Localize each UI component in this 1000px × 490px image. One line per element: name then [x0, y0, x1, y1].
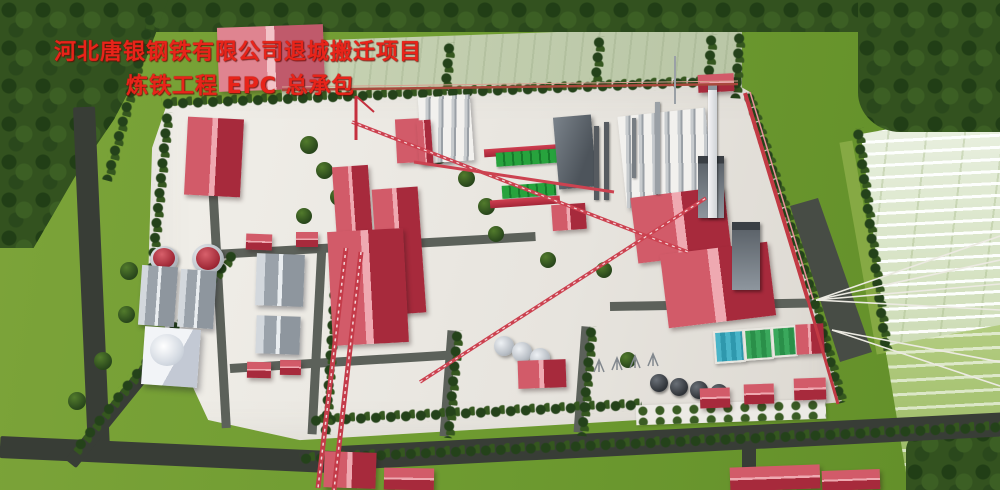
tower-crane: [356, 96, 374, 140]
conveyor-gallery: [352, 122, 706, 382]
aerial-render-steel-plant: 河北唐银钢铁有限公司退城搬迁项目 炼铁工程 EPC 总承包: [0, 0, 1000, 490]
railway-fan: [790, 198, 1000, 386]
conveyor-south-exit: [318, 248, 361, 490]
power-pylon-row: [594, 354, 658, 372]
project-title-line2: 炼铁工程 EPC 总承包: [126, 68, 355, 100]
project-title-line1: 河北唐银钢铁有限公司退城搬迁项目: [54, 34, 422, 66]
